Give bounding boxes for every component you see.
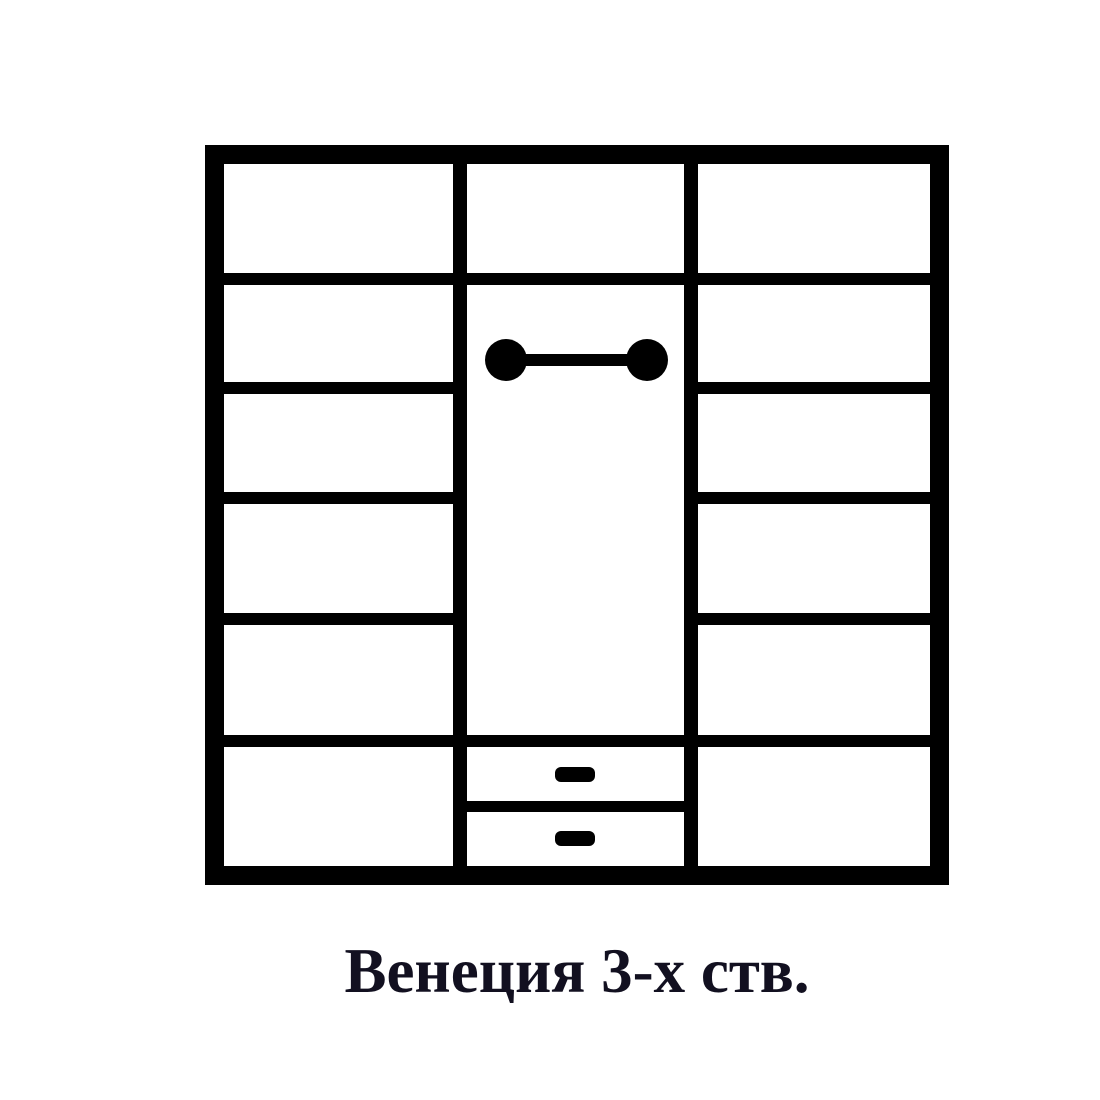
drawer-handle-icon [555,767,595,782]
shelf-line-right-4 [698,613,930,625]
shelf-line-left-3 [224,492,453,504]
shelf-line-left-4 [224,613,453,625]
drawer-handle-icon [555,831,595,846]
diagram-caption: Венеция 3-х ств. [205,938,949,1004]
wardrobe-outline [205,145,949,885]
section-divider-right [684,164,698,866]
shelf-line-right-2 [698,382,930,394]
drawer-divider-line [467,801,684,812]
shelf-line-top-full [224,273,930,285]
section-divider-left [453,164,467,866]
shelf-line-left-2 [224,382,453,394]
shelf-line-bottom-full [224,735,930,747]
diagram-canvas: Венеция 3-х ств. [0,0,1100,1100]
shelf-line-right-3 [698,492,930,504]
hanging-rod-icon [626,339,668,381]
